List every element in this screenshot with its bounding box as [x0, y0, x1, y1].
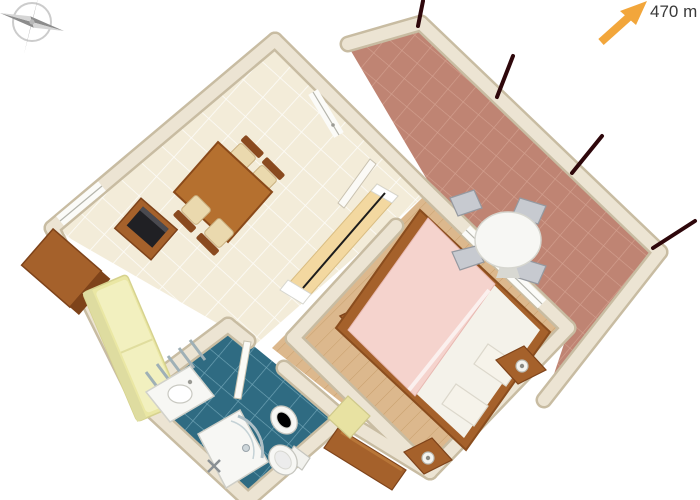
door-knob — [331, 123, 335, 127]
floor-plan-canvas: 470 m — [0, 0, 700, 500]
compass-icon — [0, 0, 64, 54]
faucet — [188, 380, 192, 384]
railing-tick — [653, 221, 695, 248]
shower-drain — [243, 445, 250, 452]
floor-plan: 470 m — [0, 0, 700, 500]
distance-indicator: 470 m — [601, 1, 697, 42]
railing-tick — [572, 136, 602, 173]
distance-label: 470 m — [650, 2, 697, 21]
north-east-arrow — [601, 16, 630, 42]
railing-tick — [497, 56, 513, 97]
terrace-table — [475, 212, 541, 268]
